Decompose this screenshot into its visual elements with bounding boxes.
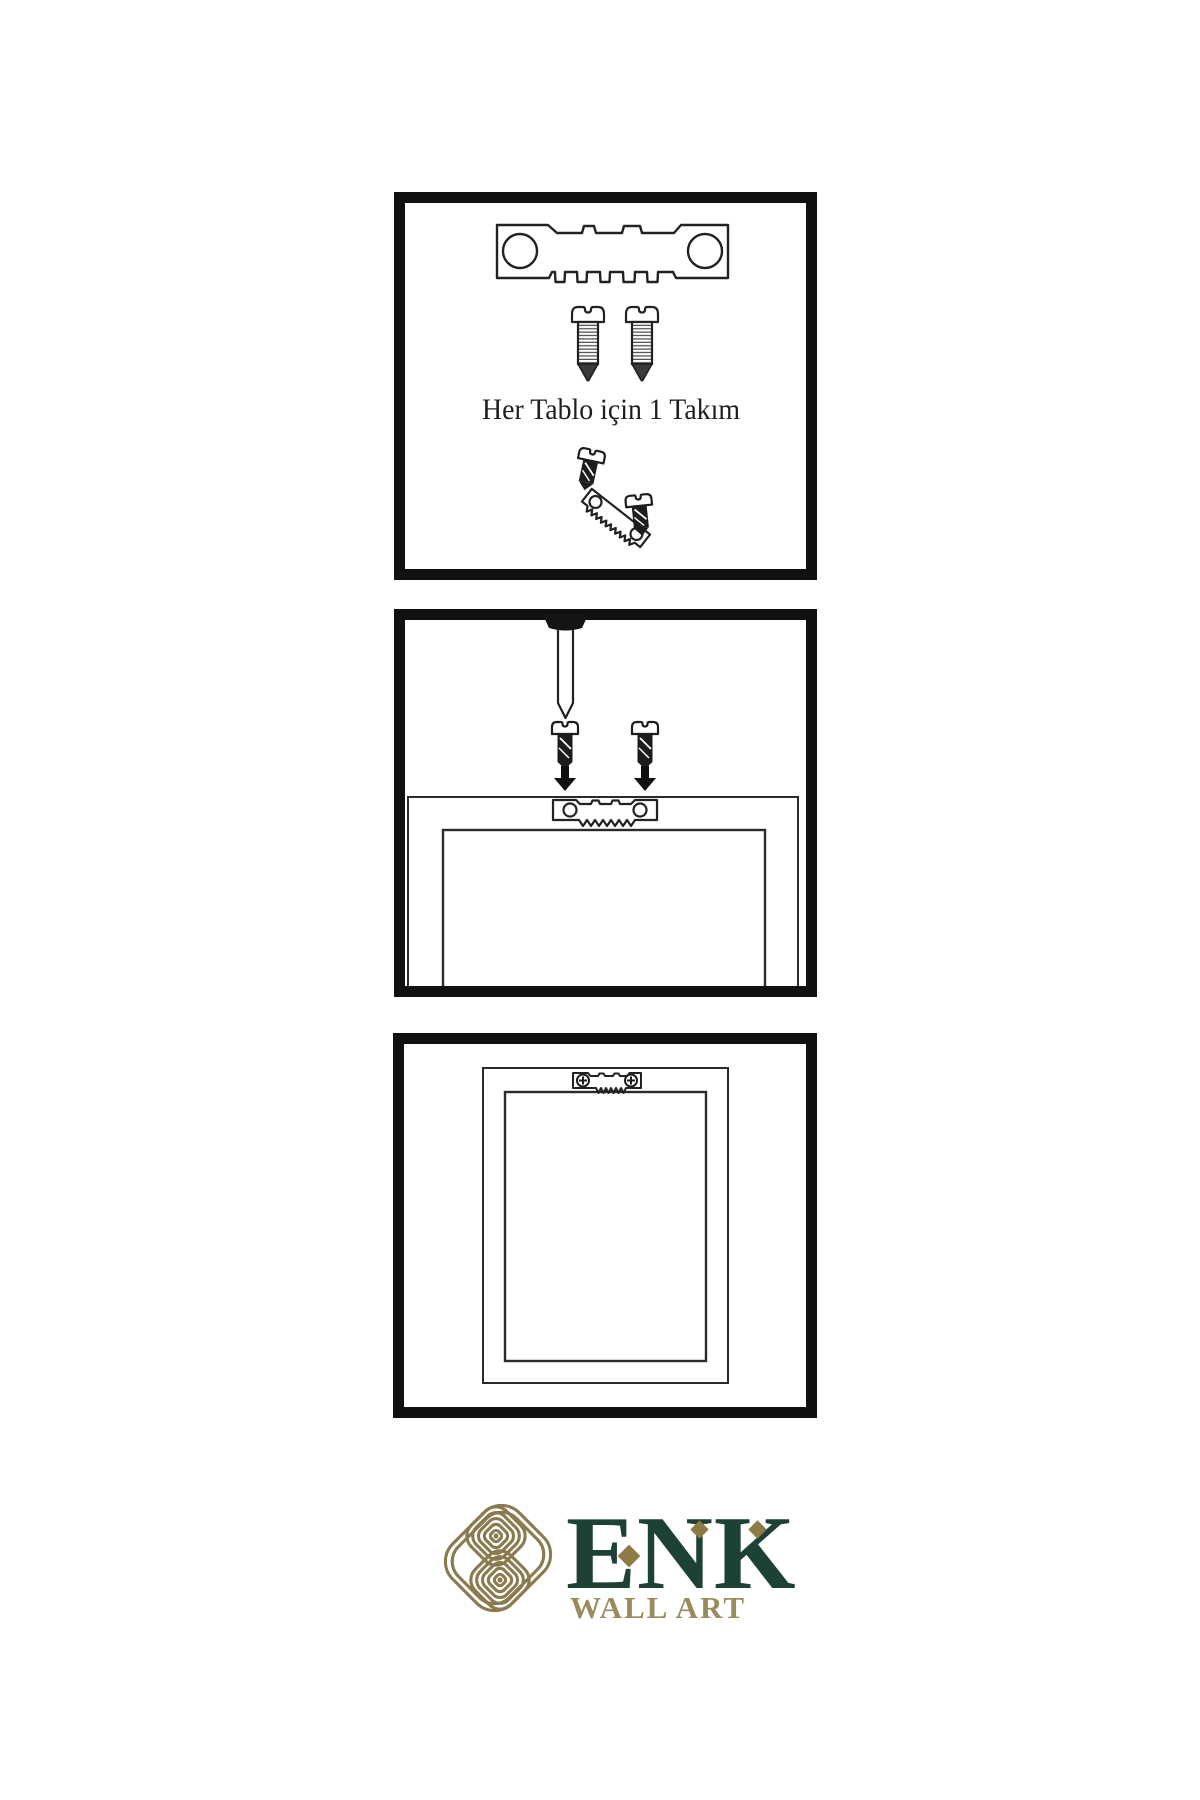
- arrow-down-icon: [634, 766, 656, 791]
- dark-screw-icon: [552, 722, 578, 769]
- dark-screw-icon: [572, 447, 606, 493]
- nail-head-icon: [543, 615, 588, 631]
- phillips-screw-head-icon: [577, 1075, 589, 1087]
- panel-1-caption: Her Tablo için 1 Takım: [482, 393, 740, 426]
- frame-back-icon: [408, 797, 798, 993]
- framed-picture-icon: [483, 1068, 728, 1383]
- brand-subtitle: WALL ART: [570, 1592, 746, 1623]
- hanger-hole-right: [688, 234, 722, 268]
- hanger-hole-left: [503, 234, 537, 268]
- sawtooth-hanger-icon: [497, 225, 728, 282]
- phillips-screw-head-icon: [625, 1075, 637, 1087]
- dark-screw-icon: [632, 722, 658, 769]
- knot-dot: [493, 1533, 498, 1538]
- arrow-down-icon: [554, 766, 576, 791]
- nail-icon: [558, 623, 573, 718]
- panel-2-mounting: [394, 609, 817, 997]
- instruction-sheet: Her Tablo için 1 Takım: [0, 0, 1200, 1800]
- knot-logo-icon: [433, 1485, 563, 1631]
- hanger-hole: [564, 804, 577, 817]
- knot-dot: [497, 1577, 502, 1582]
- screw-icon: [572, 307, 604, 381]
- panel-1-hardware-kit: Her Tablo için 1 Takım: [394, 192, 817, 580]
- screw-icon: [626, 307, 658, 381]
- panel-3-hanging-frame: [393, 1033, 817, 1418]
- hanger-hole: [634, 804, 647, 817]
